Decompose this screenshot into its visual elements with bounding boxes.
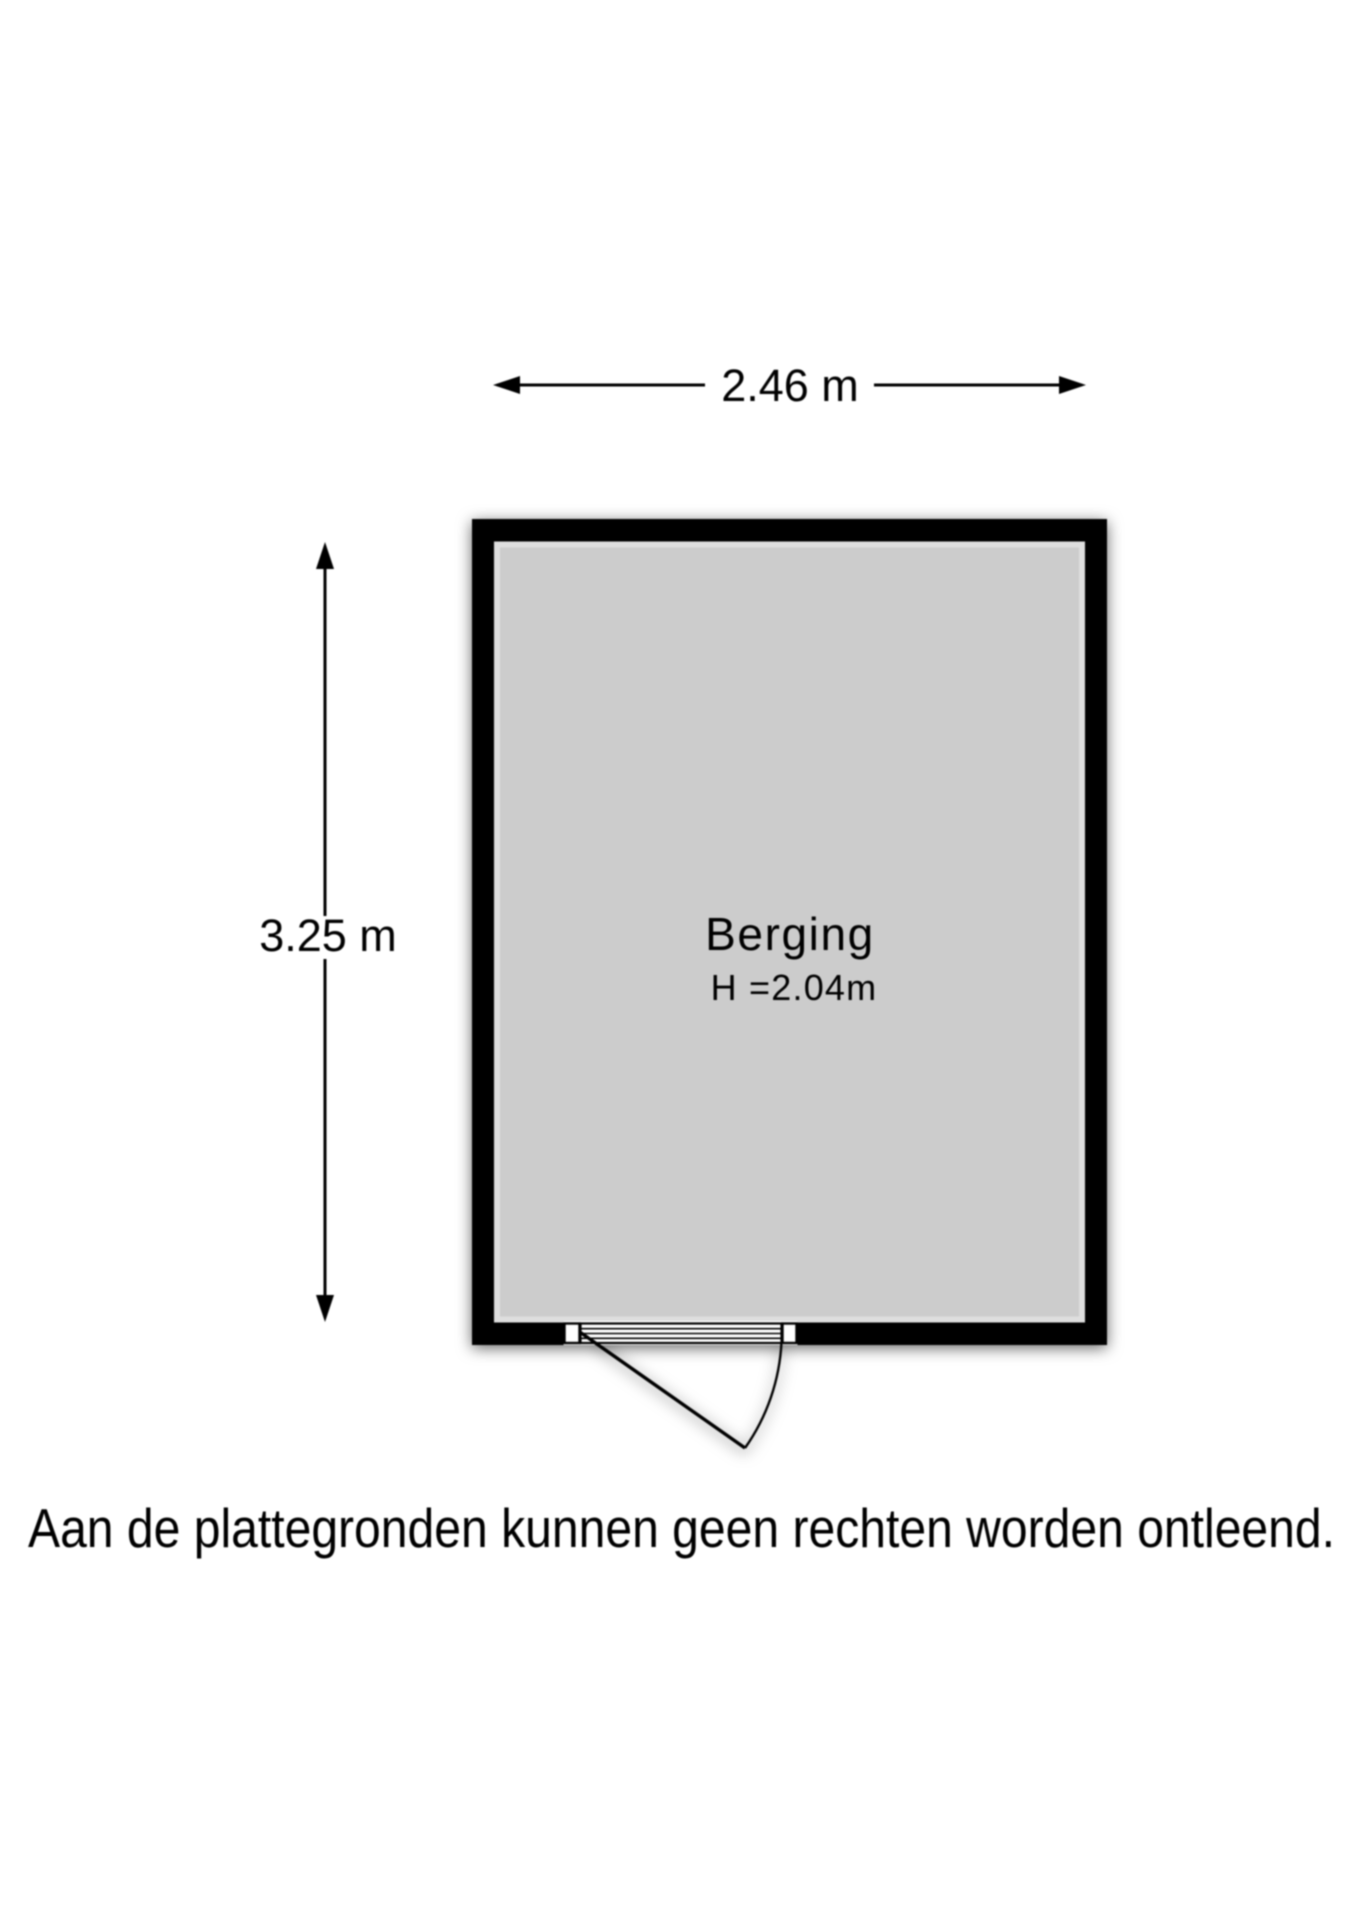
svg-text:H =2.04m: H =2.04m xyxy=(711,967,878,1008)
svg-text:Berging: Berging xyxy=(705,908,875,960)
svg-text:2.46 m: 2.46 m xyxy=(721,360,859,411)
svg-text:3.25 m: 3.25 m xyxy=(259,910,397,961)
svg-text:Aan de plattegronden kunnen ge: Aan de plattegronden kunnen geen rechten… xyxy=(28,1497,1335,1559)
